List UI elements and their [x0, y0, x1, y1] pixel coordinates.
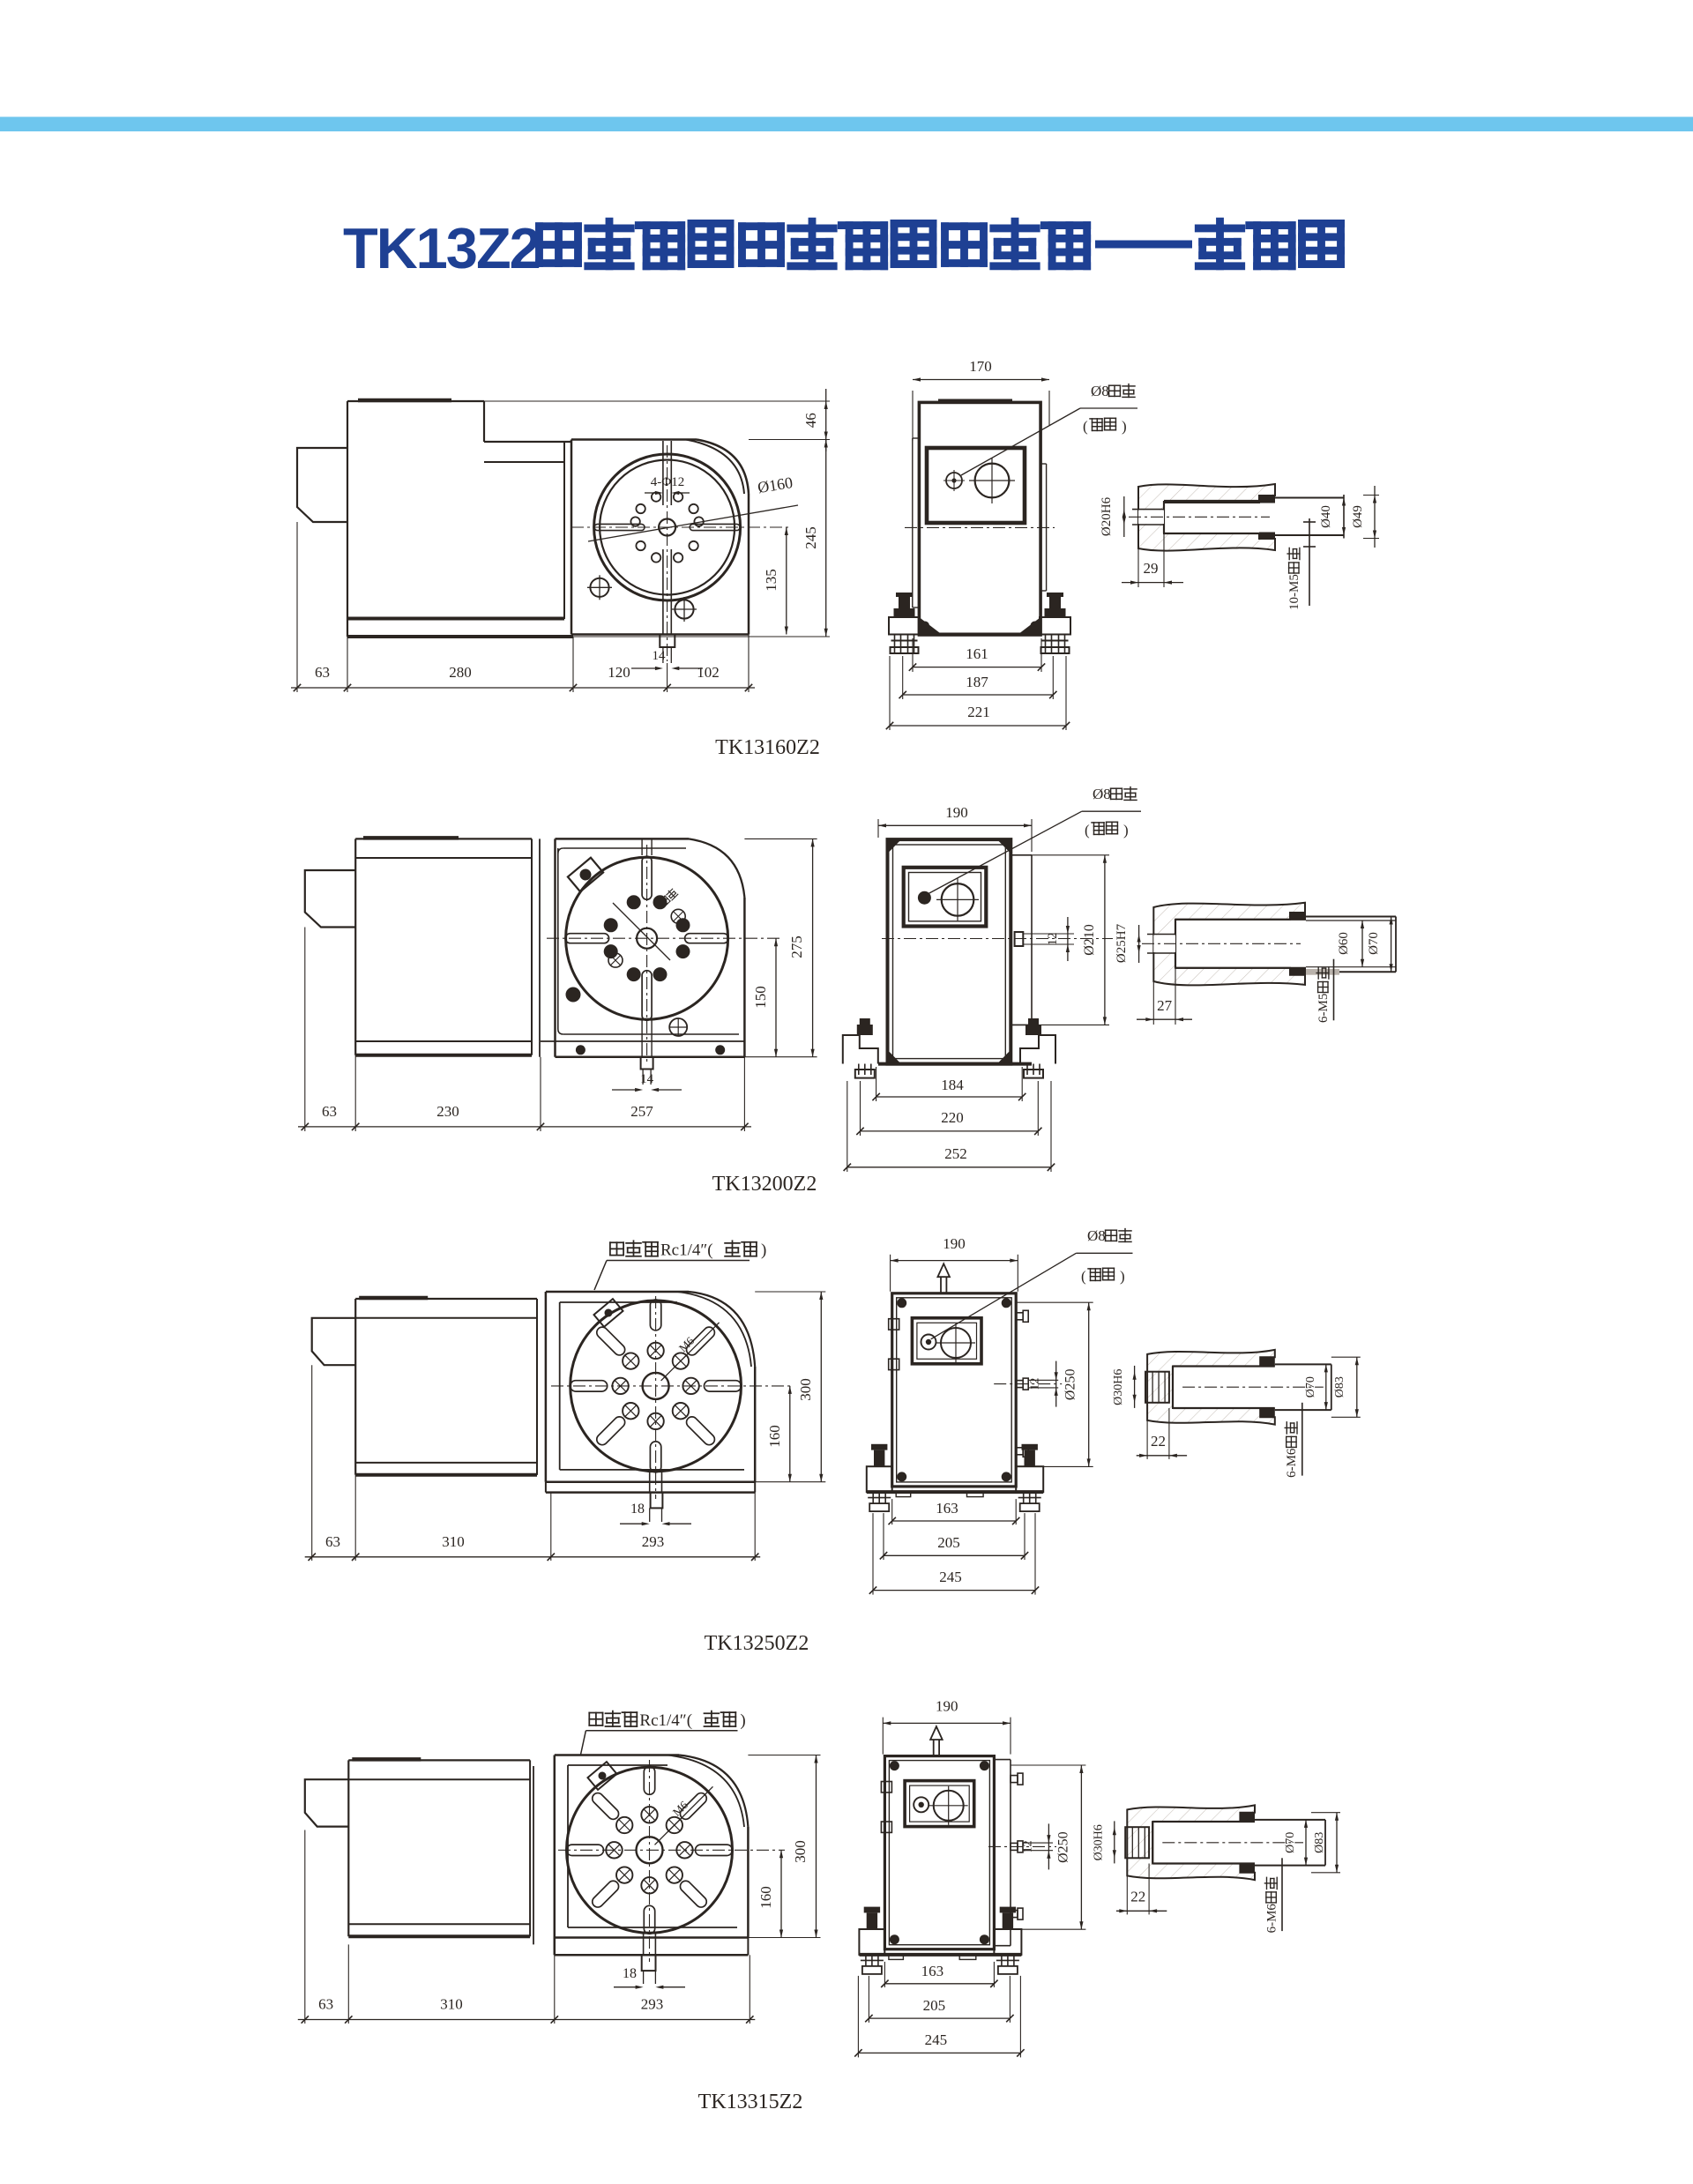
svg-text:Ø83: Ø83 — [1313, 1832, 1326, 1853]
svg-text:): ) — [1123, 822, 1129, 839]
svg-text:163: 163 — [936, 1500, 958, 1517]
svg-text:29: 29 — [1144, 560, 1159, 577]
svg-text:Ø160: Ø160 — [757, 473, 794, 496]
svg-text:245: 245 — [802, 526, 819, 549]
svg-text:163: 163 — [921, 1963, 944, 1979]
svg-text:22: 22 — [1130, 1888, 1145, 1904]
svg-text:160: 160 — [757, 1886, 774, 1909]
svg-text:Ø8: Ø8 — [1087, 1227, 1106, 1244]
svg-text:Ø30H6: Ø30H6 — [1112, 1369, 1125, 1405]
svg-text:252: 252 — [944, 1145, 967, 1162]
svg-text:Ø20H6: Ø20H6 — [1100, 496, 1114, 536]
svg-text:63: 63 — [315, 664, 330, 681]
svg-text:12: 12 — [1046, 933, 1060, 946]
svg-text:TK13315Z2: TK13315Z2 — [698, 2091, 803, 2113]
svg-text:Rc1/4″(: Rc1/4″( — [660, 1241, 713, 1260]
svg-text:170: 170 — [969, 358, 992, 375]
svg-text:63: 63 — [318, 1996, 333, 2013]
svg-text:102: 102 — [697, 664, 720, 681]
svg-text:Ø70: Ø70 — [1284, 1832, 1297, 1853]
svg-text:Ø25H7: Ø25H7 — [1115, 923, 1129, 963]
svg-text:6-M6: 6-M6 — [1285, 1448, 1299, 1478]
svg-text:Ø210: Ø210 — [1082, 924, 1097, 956]
svg-text:(: ( — [1085, 822, 1090, 839]
svg-text:M6: M6 — [670, 1798, 691, 1819]
svg-text:310: 310 — [442, 1533, 465, 1550]
svg-text:120: 120 — [608, 664, 630, 681]
svg-text:293: 293 — [641, 1996, 664, 2013]
svg-text:TK13200Z2: TK13200Z2 — [712, 1173, 817, 1196]
svg-text:46: 46 — [802, 413, 819, 428]
svg-text:M6: M6 — [676, 1334, 697, 1355]
svg-text:): ) — [740, 1711, 745, 1730]
svg-text:TK13Z2: TK13Z2 — [343, 216, 540, 280]
svg-text:Ø83: Ø83 — [1333, 1376, 1346, 1398]
svg-text:Ø70: Ø70 — [1367, 932, 1381, 955]
svg-text:): ) — [1122, 418, 1127, 435]
svg-text:Ø250: Ø250 — [1055, 1831, 1070, 1863]
svg-text:18: 18 — [630, 1502, 645, 1517]
svg-text:257: 257 — [630, 1103, 653, 1120]
svg-text:221: 221 — [967, 704, 990, 720]
svg-text:22: 22 — [1151, 1433, 1166, 1450]
svg-text:220: 220 — [941, 1109, 964, 1126]
svg-text:190: 190 — [945, 804, 968, 821]
svg-text:187: 187 — [966, 674, 988, 690]
svg-text:300: 300 — [797, 1378, 814, 1401]
svg-text:14: 14 — [653, 649, 667, 663]
svg-text:63: 63 — [325, 1533, 340, 1550]
svg-text:(: ( — [1083, 418, 1088, 435]
svg-text:300: 300 — [792, 1840, 809, 1863]
svg-text:Ø8: Ø8 — [1093, 786, 1111, 802]
svg-text:280: 280 — [449, 664, 472, 681]
svg-text:245: 245 — [939, 1569, 962, 1585]
svg-text:184: 184 — [941, 1077, 964, 1093]
svg-text:190: 190 — [943, 1235, 966, 1252]
svg-text:Ø60: Ø60 — [1337, 932, 1351, 955]
svg-text:14: 14 — [640, 1072, 654, 1086]
svg-text:160: 160 — [766, 1425, 783, 1448]
svg-text:18: 18 — [623, 1966, 637, 1981]
svg-text:): ) — [761, 1241, 766, 1260]
svg-text:161: 161 — [966, 645, 988, 662]
svg-text:190: 190 — [936, 1698, 958, 1715]
svg-text:205: 205 — [923, 1997, 946, 2014]
svg-text:150: 150 — [752, 986, 769, 1009]
svg-text:Rc1/4″(: Rc1/4″( — [639, 1711, 692, 1730]
svg-text:): ) — [1120, 1268, 1125, 1285]
svg-text:6-M6: 6-M6 — [1264, 1904, 1279, 1934]
svg-text:TK13160Z2: TK13160Z2 — [715, 736, 820, 759]
svg-text:10-M5: 10-M5 — [1287, 574, 1301, 610]
svg-text:27: 27 — [1157, 997, 1173, 1014]
svg-text:230: 230 — [436, 1103, 459, 1120]
svg-text:Ø70: Ø70 — [1304, 1376, 1317, 1398]
svg-text:(: ( — [1081, 1268, 1086, 1285]
svg-text:Ø40: Ø40 — [1319, 505, 1333, 528]
svg-text:Ø30H6: Ø30H6 — [1092, 1824, 1105, 1860]
svg-text:TK13250Z2: TK13250Z2 — [705, 1632, 809, 1655]
svg-text:Ø250: Ø250 — [1063, 1369, 1078, 1401]
svg-text:63: 63 — [322, 1103, 337, 1120]
svg-text:4-Φ12: 4-Φ12 — [651, 475, 684, 489]
svg-text:275: 275 — [788, 935, 805, 958]
svg-text:6-M5: 6-M5 — [1316, 994, 1331, 1023]
svg-text:310: 310 — [440, 1996, 463, 2013]
svg-text:Ø8: Ø8 — [1091, 383, 1109, 399]
svg-text:Ø49: Ø49 — [1351, 505, 1365, 528]
svg-text:135: 135 — [763, 569, 779, 592]
svg-text:205: 205 — [937, 1534, 960, 1551]
svg-text:245: 245 — [925, 2031, 948, 2048]
svg-text:293: 293 — [642, 1533, 665, 1550]
